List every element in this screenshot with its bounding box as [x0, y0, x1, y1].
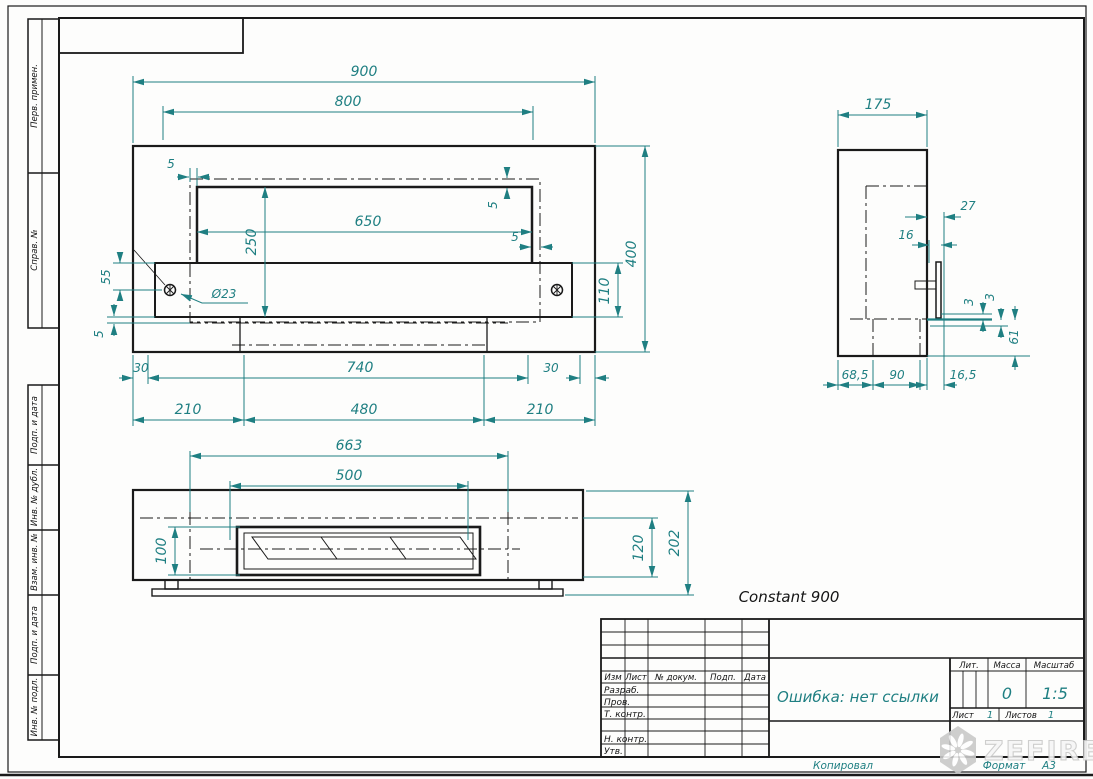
tb-document-name: Ошибка: нет ссылки	[777, 688, 939, 706]
dim-front-opening-height-250: 250	[244, 229, 260, 256]
tb-sheets-value: 1	[1048, 710, 1054, 721]
dim-front-gap-5-right-top: 5	[486, 201, 500, 209]
knob-leader-line	[134, 250, 165, 285]
dim-front-band-height-110: 110	[597, 278, 613, 305]
dim-side-gap-3-second: 3	[983, 293, 997, 301]
dim-plan-depth-202: 202	[667, 530, 683, 557]
tb-sheet-value: 1	[987, 710, 993, 721]
dim-side-height-61: 61	[1007, 329, 1021, 344]
knob-left	[165, 285, 176, 296]
tb-sheets-label: Листов	[1004, 711, 1037, 721]
tb-col-list: Лист	[624, 673, 648, 683]
foot-left	[165, 580, 178, 589]
sheet-frame	[0, 6, 1093, 775]
margin-label-perv-primen: Перв. примен.	[30, 64, 40, 128]
format-value: А3	[1041, 760, 1056, 772]
dim-plan-width-500: 500	[336, 468, 363, 484]
plan-view	[133, 490, 583, 596]
tb-row-utv: Утв.	[604, 747, 623, 757]
tb-row-prov: Пров.	[604, 698, 630, 708]
drawing-sheet: Перв. примен. Справ. № Подп. и дата Инв.…	[0, 0, 1093, 779]
bottom-strip: Копировал Формат А3	[813, 760, 1056, 772]
tb-col-izm: Изм	[604, 673, 622, 683]
glass-tab	[936, 262, 941, 318]
margin-label-podp-data-2: Подп. и дата	[30, 606, 40, 664]
tb-scale-label: Масштаб	[1034, 661, 1074, 671]
margin-label-vzam-inv: Взам. инв. №	[30, 533, 40, 591]
copied-label: Копировал	[813, 760, 873, 772]
dim-front-210-left: 210	[175, 402, 202, 418]
dim-front-210-right: 210	[527, 402, 554, 418]
tb-col-data: Дата	[743, 673, 766, 683]
cad-drawing: Перв. примен. Справ. № Подп. и дата Инв.…	[0, 0, 1093, 779]
dim-plan-depth-120: 120	[631, 535, 647, 562]
dim-side-depth-175: 175	[865, 97, 892, 113]
dim-front-gap-5-bottom-left: 5	[92, 330, 106, 338]
dim-front-knob-offset-55: 55	[99, 269, 113, 284]
tb-scale-value: 1:5	[1042, 684, 1068, 703]
margin-label-podp-data-1: Подп. и дата	[30, 396, 40, 454]
tb-mass-label: Масса	[993, 661, 1020, 671]
tb-mass-value: 0	[1002, 684, 1012, 703]
dim-front-overall-height-400: 400	[624, 241, 640, 268]
base-plate	[152, 589, 563, 596]
logo-hexagon-icon	[940, 726, 976, 774]
front-view-dimensions: 900 800 650 250 5 5 5 55	[92, 64, 650, 426]
foot-right	[539, 580, 552, 589]
dim-front-480-center: 480	[351, 402, 378, 418]
plan-view-dimensions: 663 500 100 120 202	[154, 438, 694, 595]
dim-side-offset-27: 27	[960, 199, 976, 213]
margin-column: Перв. примен. Справ. № Подп. и дата Инв.…	[28, 19, 59, 740]
tb-col-podp: Подп.	[710, 673, 736, 683]
margin-label-inv-dubl: Инв. № дубл.	[30, 468, 40, 526]
dim-front-overall-width: 900	[351, 64, 378, 80]
dim-front-opening-width-650: 650	[355, 214, 382, 230]
dim-plan-width-663: 663	[336, 438, 363, 454]
burner-slots	[252, 537, 476, 559]
dim-side-685: 68,5	[842, 368, 869, 382]
drawing-title: Constant 900	[739, 588, 840, 606]
dim-side-offset-16: 16	[898, 228, 914, 242]
tb-col-doc: № докум.	[654, 673, 697, 683]
tb-lit-label: Лит.	[958, 661, 979, 671]
dim-front-base-width-740: 740	[347, 360, 374, 376]
tb-row-nkontr: Н. контр.	[604, 735, 647, 745]
dim-plan-depth-100: 100	[154, 538, 170, 565]
tb-sheet-label: Лист	[951, 711, 975, 721]
dim-side-gap-3-first: 3	[962, 298, 976, 306]
dim-front-gap-5-right-side: 5	[511, 230, 519, 244]
dim-front-hole-diameter: Ø23	[211, 287, 237, 301]
tb-row-razrab: Разраб.	[604, 686, 639, 696]
dim-front-edge-30-left: 30	[133, 361, 149, 375]
dim-front-edge-30-right: 30	[543, 361, 559, 375]
dim-side-165: 16,5	[950, 368, 977, 382]
dim-front-gap-5-top-left: 5	[167, 157, 175, 171]
dim-side-90: 90	[889, 368, 905, 382]
margin-label-inv-podl: Инв. № подл.	[30, 678, 40, 737]
knob-right	[552, 285, 563, 296]
tab-bracket	[915, 281, 936, 289]
dim-front-inner-width-800: 800	[335, 94, 362, 110]
side-view	[838, 150, 992, 356]
format-label: Формат	[983, 760, 1026, 772]
top-left-stamp-box	[59, 18, 243, 53]
tb-row-tkontr: Т. контр.	[604, 710, 646, 720]
margin-label-sprav-n: Справ. №	[30, 229, 40, 271]
